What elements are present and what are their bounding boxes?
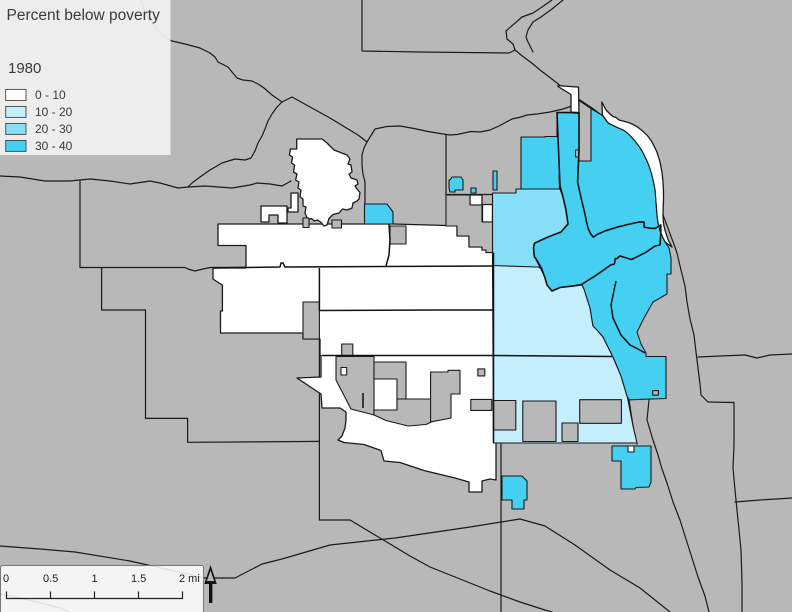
- svg-text:Percent below poverty: Percent below poverty: [7, 7, 161, 24]
- svg-text:30 - 40: 30 - 40: [35, 139, 73, 153]
- svg-text:10 - 20: 10 - 20: [35, 105, 73, 119]
- svg-text:0: 0: [3, 573, 9, 585]
- svg-text:2 mi: 2 mi: [179, 573, 200, 585]
- svg-text:20 - 30: 20 - 30: [35, 122, 73, 136]
- svg-text:0.5: 0.5: [43, 573, 58, 585]
- svg-text:0 - 10: 0 - 10: [35, 88, 66, 102]
- svg-text:1980: 1980: [8, 60, 41, 77]
- svg-text:1.5: 1.5: [131, 573, 146, 585]
- svg-text:1: 1: [92, 573, 98, 585]
